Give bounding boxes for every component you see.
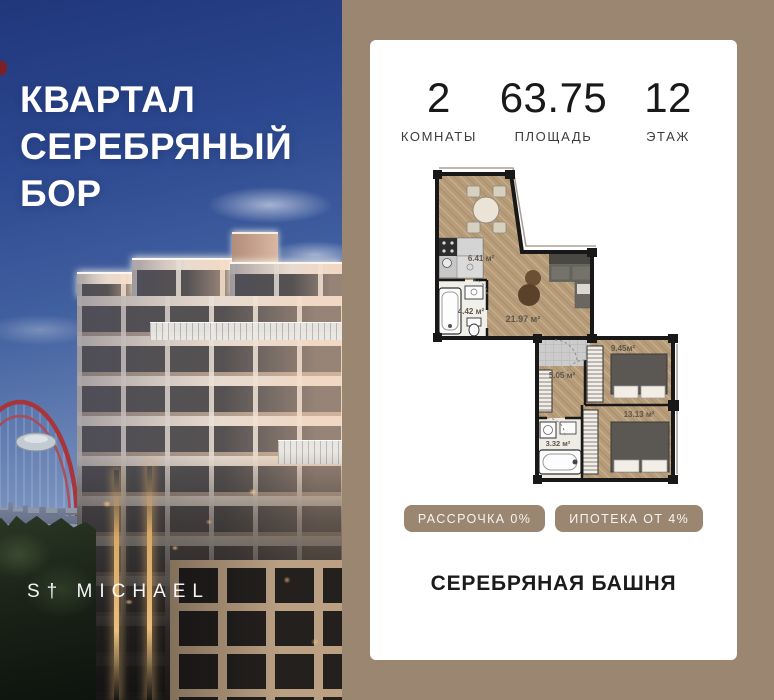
building-photo: КВАРТАЛ СЕРЕБРЯНЫЙ БОР S† MICHAEL [0, 0, 342, 700]
stat-area: 63.75 ПЛОЩАДЬ [490, 74, 617, 144]
project-name: СЕРЕБРЯНАЯ БАШНЯ [370, 572, 737, 596]
tower-penthouse [232, 232, 278, 264]
area-label: ПЛОЩАДЬ [490, 129, 617, 144]
rooms-label: КОМНАТЫ [388, 129, 490, 144]
brand-logo: S† MICHAEL [0, 581, 237, 603]
stat-floor: 12 ЭТАЖ [617, 74, 719, 144]
bedroom1-furniture [587, 346, 667, 402]
floor-plan-container: 6.41 м² 4.42 м² 21.97 м² 5.05 м² 9.45м² … [425, 160, 683, 493]
lit-windows [77, 452, 342, 700]
room-label-bedroom2: 13.13 м² [623, 410, 654, 419]
headline-line: БОР [20, 170, 292, 217]
mortgage-badge[interactable]: ИПОТЕКА ОТ 4% [555, 505, 703, 532]
badges-row: РАССРОЧКА 0% ИПОТЕКА ОТ 4% [370, 505, 737, 532]
quarter-headline: КВАРТАЛ СЕРЕБРЯНЫЙ БОР [20, 76, 292, 217]
room-label-bathroom2: 3.32 м² [545, 439, 570, 448]
stats-row: 2 КОМНАТЫ 63.75 ПЛОЩАДЬ 12 ЭТАЖ [370, 40, 737, 144]
rooms-value: 2 [388, 74, 490, 122]
pouf [518, 284, 540, 306]
floor-value: 12 [617, 74, 719, 122]
stat-rooms: 2 КОМНАТЫ [388, 74, 490, 144]
red-dot-artifact [0, 61, 7, 75]
right-panel: 2 КОМНАТЫ 63.75 ПЛОЩАДЬ 12 ЭТАЖ [342, 0, 774, 700]
tower-crown-mid [132, 258, 232, 298]
floor-plan: 6.41 м² 4.42 м² 21.97 м² 5.05 м² 9.45м² … [425, 160, 683, 488]
room-label-bedroom1: 9.45м² [610, 344, 634, 353]
tower-crown-left [77, 272, 132, 298]
room-label-living: 21.97 м² [505, 314, 540, 324]
headline-line: КВАРТАЛ [20, 76, 292, 123]
headline-line: СЕРЕБРЯНЫЙ [20, 123, 292, 170]
info-card: 2 КОМНАТЫ 63.75 ПЛОЩАДЬ 12 ЭТАЖ [370, 40, 737, 660]
balcony-band [150, 322, 342, 340]
entry-tiles [537, 340, 590, 366]
listing-banner: КВАРТАЛ СЕРЕБРЯНЫЙ БОР S† MICHAEL 2 КОМН… [0, 0, 774, 700]
installment-badge[interactable]: РАССРОЧКА 0% [404, 505, 545, 532]
trees [0, 512, 96, 700]
room-label-bathroom1: 4.42 м² [457, 307, 484, 316]
room-label-kitchen: 6.41 м² [467, 254, 494, 263]
area-value: 63.75 [490, 74, 617, 122]
pouf [525, 270, 541, 286]
room-label-hallway: 5.05 м² [548, 371, 575, 380]
floor-label: ЭТАЖ [617, 129, 719, 144]
tower-crown-right [230, 262, 342, 298]
